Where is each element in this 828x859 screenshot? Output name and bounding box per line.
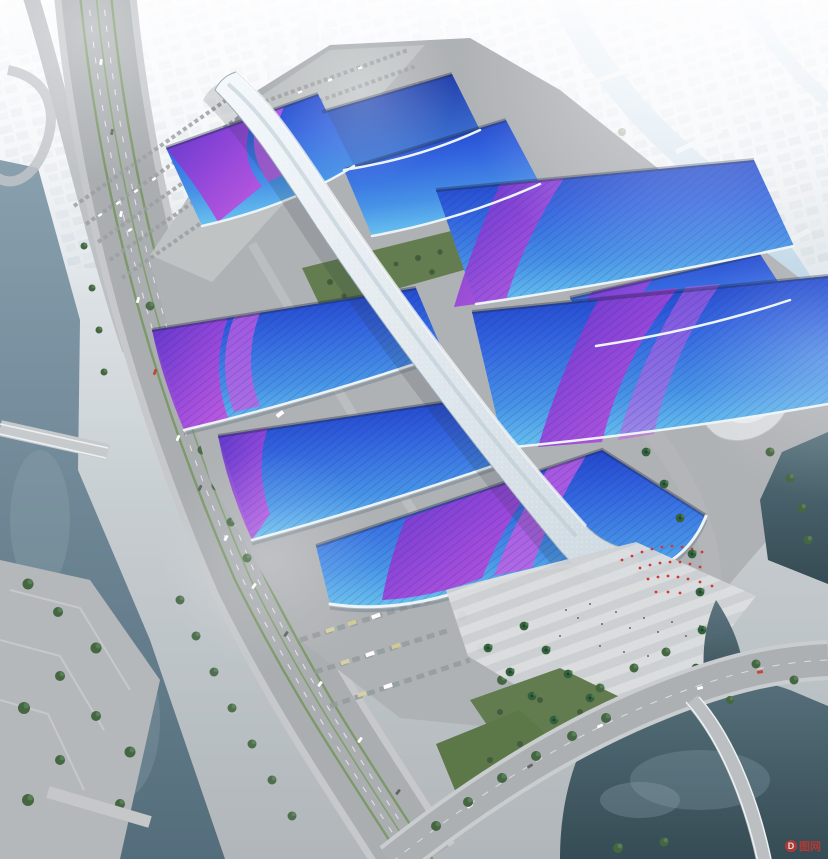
watermark-text: 图网 — [799, 838, 821, 854]
scene-rendering — [0, 0, 828, 859]
watermark-logo-icon: D — [785, 840, 797, 852]
aerial-rendering-stage: D 图网 — [0, 0, 828, 859]
haze-tint — [0, 0, 828, 859]
stock-watermark: D 图网 — [785, 838, 821, 854]
